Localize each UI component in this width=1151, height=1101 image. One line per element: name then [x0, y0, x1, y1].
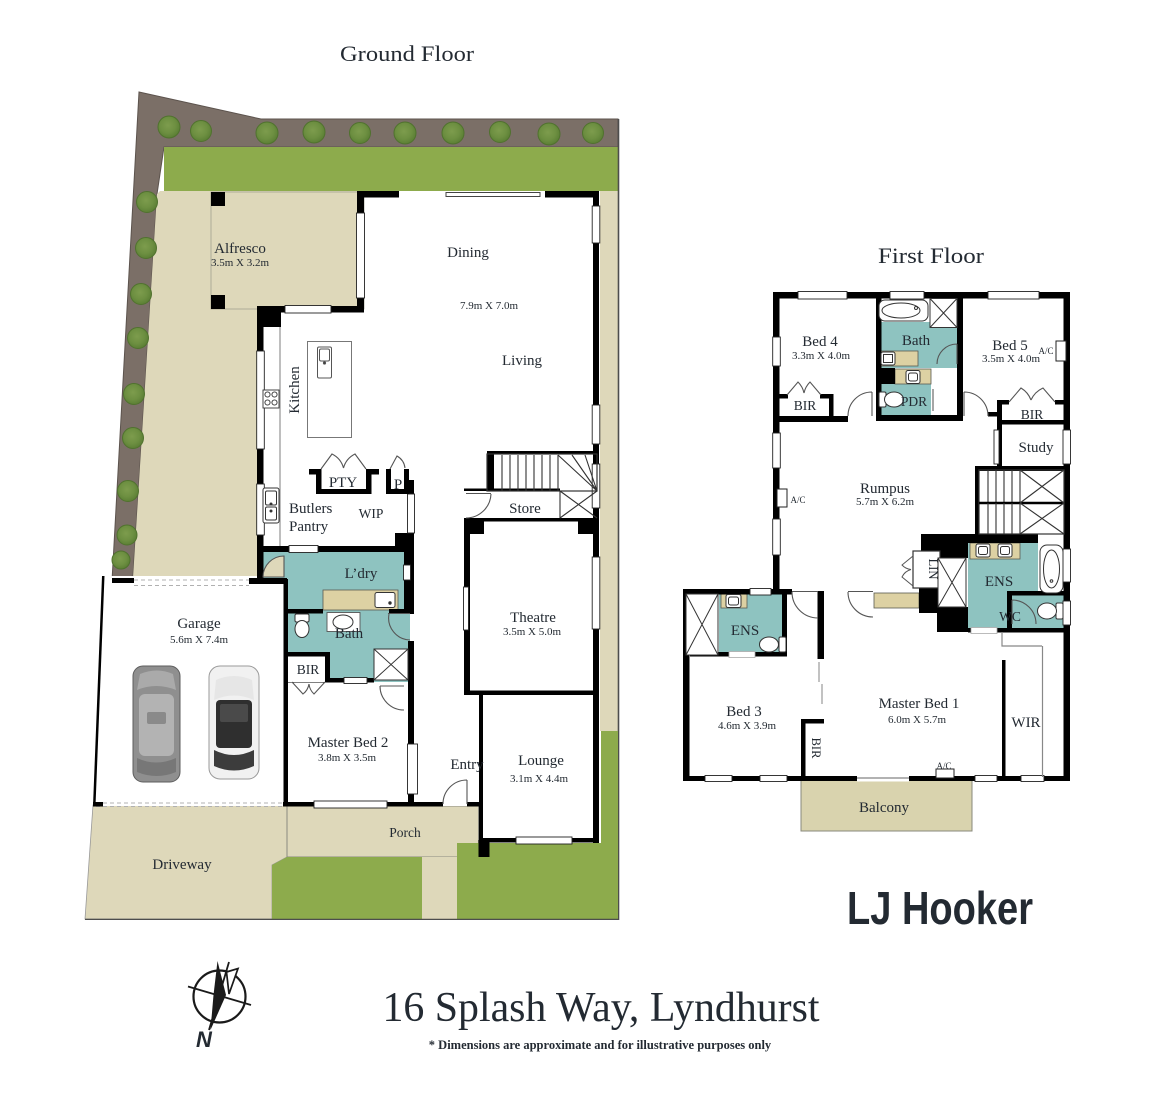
svg-text:7.9m X 7.0m: 7.9m X 7.0m [460, 300, 519, 312]
svg-text:BIR: BIR [794, 398, 817, 413]
svg-text:3.1m X 4.4m: 3.1m X 4.4m [510, 773, 569, 785]
svg-text:PDR: PDR [901, 394, 927, 409]
svg-text:Master Bed 2: Master Bed 2 [308, 735, 389, 751]
svg-text:3.5m X 5.0m: 3.5m X 5.0m [503, 626, 562, 638]
svg-text:5.7m X 6.2m: 5.7m X 6.2m [856, 496, 915, 508]
svg-text:A/C: A/C [936, 761, 951, 771]
svg-text:16 Splash Way, Lyndhurst: 16 Splash Way, Lyndhurst [383, 985, 820, 1031]
svg-text:N: N [196, 1027, 213, 1052]
svg-text:Bath: Bath [335, 626, 364, 642]
svg-text:* Dimensions are approximate a: * Dimensions are approximate and for ill… [429, 1038, 772, 1052]
svg-text:LJ Hooker: LJ Hooker [847, 882, 1033, 934]
svg-text:3.5m X 3.2m: 3.5m X 3.2m [211, 257, 270, 269]
svg-text:LIN: LIN [926, 559, 940, 580]
svg-text:BIR: BIR [1021, 407, 1044, 422]
svg-text:6.0m X 5.7m: 6.0m X 5.7m [888, 714, 947, 726]
svg-text:Driveway: Driveway [152, 857, 212, 873]
svg-text:4.6m X 3.9m: 4.6m X 3.9m [718, 720, 777, 732]
svg-text:Master Bed 1: Master Bed 1 [879, 696, 960, 712]
svg-text:Butlers: Butlers [289, 501, 332, 517]
svg-text:Store: Store [509, 501, 541, 517]
svg-text:Study: Study [1018, 440, 1054, 456]
svg-text:A/C: A/C [1038, 346, 1053, 356]
svg-text:Lounge: Lounge [518, 753, 564, 769]
svg-text:Garage: Garage [177, 616, 221, 632]
svg-text:L’dry: L’dry [345, 566, 378, 582]
svg-text:P: P [394, 477, 402, 493]
svg-text:3.3m X 4.0m: 3.3m X 4.0m [792, 350, 851, 362]
svg-text:Bed 5: Bed 5 [992, 338, 1027, 354]
svg-text:Bath: Bath [902, 333, 931, 349]
svg-text:Living: Living [502, 353, 542, 369]
svg-text:Alfresco: Alfresco [214, 241, 266, 257]
svg-text:Rumpus: Rumpus [860, 481, 910, 497]
svg-text:Porch: Porch [389, 825, 421, 840]
svg-text:5.6m X 7.4m: 5.6m X 7.4m [170, 634, 229, 646]
svg-text:A/C: A/C [790, 495, 805, 505]
svg-text:Dining: Dining [447, 245, 489, 261]
svg-text:Theatre: Theatre [510, 610, 556, 626]
svg-text:BIR: BIR [297, 662, 320, 677]
svg-text:3.8m X 3.5m: 3.8m X 3.5m [318, 752, 377, 764]
svg-text:3.5m X 4.0m: 3.5m X 4.0m [982, 353, 1041, 365]
svg-text:BIR: BIR [809, 738, 823, 760]
svg-text:Bed 3: Bed 3 [726, 704, 761, 720]
svg-text:Kitchen: Kitchen [287, 366, 303, 414]
svg-text:Ground Floor: Ground Floor [340, 41, 475, 66]
svg-text:WIR: WIR [1011, 715, 1040, 731]
svg-text:WC: WC [999, 609, 1021, 624]
svg-text:ENS: ENS [731, 623, 759, 639]
svg-text:Balcony: Balcony [859, 800, 909, 816]
svg-text:First Floor: First Floor [878, 243, 985, 268]
svg-text:Entry: Entry [450, 757, 484, 773]
svg-text:Bed 4: Bed 4 [802, 334, 838, 350]
svg-text:PTY: PTY [329, 475, 358, 491]
svg-text:Pantry: Pantry [289, 519, 329, 535]
svg-text:WIP: WIP [359, 506, 384, 521]
svg-text:ENS: ENS [985, 574, 1013, 590]
